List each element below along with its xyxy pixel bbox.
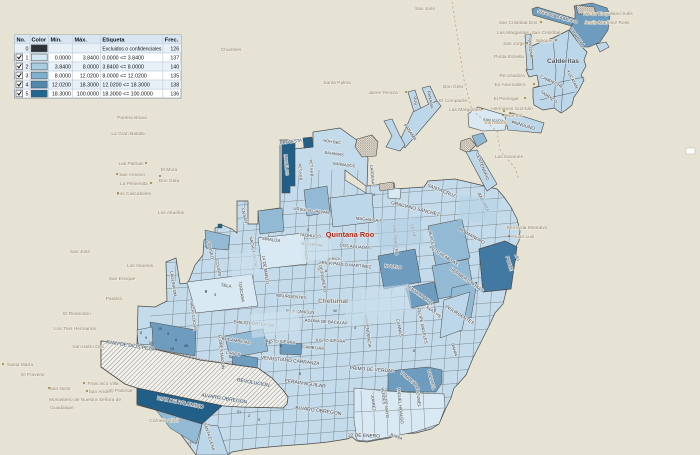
- svg-text:9: 9: [205, 290, 207, 294]
- svg-text:9: 9: [145, 336, 147, 340]
- svg-text:El Pedregal: El Pedregal: [494, 96, 519, 102]
- svg-text:45: 45: [184, 344, 188, 348]
- svg-text:2: 2: [248, 414, 250, 418]
- svg-text:9: 9: [167, 332, 169, 336]
- svg-text:9: 9: [258, 418, 260, 422]
- svg-text:8.0000 <= 12.0200: 8.0000 <= 12.0200: [102, 73, 147, 79]
- svg-text:18.3000 <= 100.0000: 18.3000 <= 100.0000: [102, 92, 152, 98]
- svg-text:Quintana Roo: Quintana Roo: [326, 230, 375, 239]
- svg-text:San Martín: San Martín: [484, 120, 508, 126]
- svg-text:137: 137: [170, 55, 179, 61]
- svg-text:10: 10: [149, 341, 153, 345]
- svg-text:El Compadre: El Compadre: [439, 98, 467, 104]
- svg-text:Partera Brava: Partera Brava: [117, 115, 147, 121]
- svg-text:5: 5: [25, 92, 28, 98]
- svg-text:Chumbes: Chumbes: [221, 47, 242, 53]
- svg-text:2: 2: [307, 228, 309, 232]
- svg-text:Punta Estrella: Punta Estrella: [494, 54, 524, 60]
- svg-text:0.0000: 0.0000: [55, 55, 71, 61]
- svg-text:126: 126: [170, 46, 179, 52]
- svg-text:Frec.: Frec.: [165, 37, 179, 43]
- svg-text:San Cristóbal Dos: San Cristóbal Dos: [499, 20, 538, 26]
- svg-text:CARDENAS: CARDENAS: [369, 165, 376, 188]
- svg-text:8: 8: [299, 372, 301, 376]
- svg-text:3: 3: [25, 73, 28, 79]
- svg-text:2: 2: [25, 64, 28, 70]
- svg-text:San Nicte: San Nicte: [50, 386, 71, 392]
- svg-text:8: 8: [140, 331, 142, 335]
- svg-text:Cornelio Vitzil: Cornelio Vitzil: [149, 418, 178, 424]
- svg-text:100.0000: 100.0000: [77, 92, 99, 98]
- svg-text:3: 3: [214, 293, 216, 297]
- svg-text:4: 4: [25, 82, 28, 88]
- svg-text:12.0200 <= 18.3000: 12.0200 <= 18.3000: [102, 82, 149, 88]
- svg-text:Las Palmas: Las Palmas: [118, 161, 144, 167]
- svg-text:1: 1: [25, 55, 28, 61]
- svg-text:01: 01: [237, 410, 241, 414]
- svg-text:12.0200: 12.0200: [80, 73, 99, 79]
- svg-text:Jaime Peraza: Jaime Peraza: [368, 90, 398, 96]
- svg-text:Don Gata: Don Gata: [159, 178, 180, 184]
- svg-text:Chetumal: Chetumal: [318, 298, 348, 305]
- svg-text:Las Margaritas: Las Margaritas: [449, 107, 481, 113]
- svg-text:Santa Palma: Santa Palma: [323, 80, 351, 86]
- svg-text:3.8400: 3.8400: [83, 55, 99, 61]
- svg-text:6: 6: [175, 338, 177, 342]
- svg-text:Etiqueta: Etiqueta: [102, 37, 125, 43]
- svg-text:San José: San José: [70, 249, 90, 255]
- svg-text:Héctor Esquiliano Solís: Héctor Esquiliano Solís: [583, 11, 633, 17]
- svg-text:136: 136: [170, 92, 179, 98]
- svg-text:Don Gelo: Don Gelo: [443, 84, 464, 90]
- svg-text:Juan Luis: Juan Luis: [514, 234, 535, 240]
- svg-text:No.: No.: [17, 37, 26, 43]
- svg-text:18.3000: 18.3000: [52, 92, 71, 98]
- svg-text:San Enrique: San Enrique: [109, 276, 136, 282]
- svg-text:La Pimientita: La Pimientita: [120, 181, 148, 187]
- svg-text:Paraíso: Paraíso: [106, 296, 123, 302]
- svg-text:Kun-Lol: Kun-Lol: [506, 113, 523, 119]
- svg-text:0.0000 <= 3.8400: 0.0000 <= 3.8400: [102, 55, 144, 61]
- svg-text:El Redondón: El Redondón: [63, 311, 91, 317]
- svg-text:El Mora: El Mora: [161, 167, 178, 173]
- svg-text:Bernarda Montalvo: Bernarda Montalvo: [507, 225, 548, 231]
- svg-text:Monasterio de Nuestra Señora d: Monasterio de Nuestra Señora de: [49, 397, 121, 403]
- svg-text:Santa María: Santa María: [7, 362, 33, 368]
- svg-text:W: W: [333, 309, 337, 313]
- svg-text:San Jorge: San Jorge: [503, 41, 525, 47]
- svg-text:Guadalupe: Guadalupe: [50, 405, 74, 411]
- svg-text:4: 4: [434, 308, 436, 312]
- svg-text:Jesús Martínez Ross: Jesús Martínez Ross: [585, 20, 630, 26]
- svg-text:5: 5: [280, 344, 282, 348]
- svg-text:3.8400 <= 8.0000: 3.8400 <= 8.0000: [102, 64, 144, 70]
- svg-text:Ex-Aserradero: Ex-Aserradero: [495, 82, 526, 88]
- svg-text:4: 4: [354, 326, 356, 330]
- svg-text:Los Abuelos: Los Abuelos: [127, 263, 154, 269]
- svg-text:Francisco Villa: Francisco Villa: [87, 381, 118, 387]
- svg-text:0: 0: [25, 46, 28, 52]
- svg-text:Ninguno: Ninguno: [536, 38, 554, 44]
- svg-text:8.0000: 8.0000: [55, 73, 71, 79]
- svg-text:Color: Color: [32, 37, 47, 43]
- svg-text:Los Tres Hermanos: Los Tres Hermanos: [54, 326, 96, 332]
- svg-text:7 5: 7 5: [265, 341, 270, 345]
- svg-text:Los Cascabeles: Los Cascabeles: [117, 191, 152, 197]
- svg-text:19: 19: [170, 347, 174, 351]
- svg-text:El Palomar: El Palomar: [109, 388, 133, 394]
- svg-text:San Antonio: San Antonio: [119, 172, 145, 178]
- svg-text:18.3000: 18.3000: [80, 82, 99, 88]
- svg-text:140: 140: [170, 64, 179, 70]
- svg-text:12.0200: 12.0200: [52, 82, 71, 88]
- svg-text:San José: San José: [415, 6, 435, 12]
- svg-text:10: 10: [158, 327, 162, 331]
- svg-text:San Cristóbal: San Cristóbal: [532, 30, 561, 36]
- svg-text:135: 135: [170, 73, 179, 79]
- svg-text:La Gran Batalla: La Gran Batalla: [111, 131, 145, 137]
- svg-text:San Isidro Dos: San Isidro Dos: [72, 344, 104, 350]
- svg-text:22 DE ENERO: 22 DE ENERO: [348, 432, 380, 439]
- svg-text:Las Margaritas: Las Margaritas: [497, 30, 529, 36]
- svg-text:4: 4: [373, 193, 375, 197]
- svg-text:Excluidos o confidenciales: Excluidos o confidenciales: [102, 46, 161, 52]
- svg-text:Calderitas: Calderitas: [547, 58, 579, 65]
- svg-text:Las Ilusiones: Las Ilusiones: [495, 154, 524, 160]
- svg-text:Los Abuelos: Los Abuelos: [158, 210, 185, 216]
- svg-text:Máx.: Máx.: [75, 37, 88, 43]
- svg-text:Hermanos Guzmán: Hermanos Guzmán: [491, 106, 533, 112]
- svg-text:Recicladora: Recicladora: [499, 73, 525, 79]
- svg-text:El Porvenir: El Porvenir: [21, 372, 45, 378]
- svg-text:8: 8: [413, 349, 415, 353]
- svg-text:138: 138: [170, 82, 179, 88]
- svg-text:3.8400: 3.8400: [55, 64, 71, 70]
- svg-text:8.0000: 8.0000: [83, 64, 99, 70]
- svg-text:Mín.: Mín.: [51, 37, 63, 43]
